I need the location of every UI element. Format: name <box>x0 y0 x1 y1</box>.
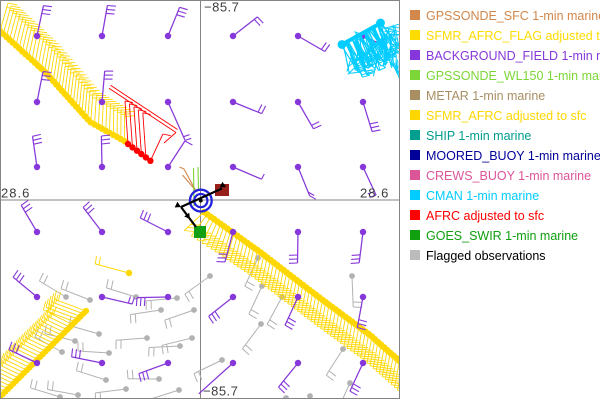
svg-text:−85.7: −85.7 <box>204 0 239 15</box>
svg-text:−85.7: −85.7 <box>203 384 238 399</box>
svg-text:CREWS_BUOY 1-min marine: CREWS_BUOY 1-min marine <box>426 169 591 183</box>
svg-text:SFMR_AFRC_FLAG adjusted to sfc: SFMR_AFRC_FLAG adjusted to sfc <box>426 29 600 43</box>
svg-text:Flagged observations: Flagged observations <box>426 249 546 263</box>
svg-text:GPSSONDE_SFC 1-min marine: GPSSONDE_SFC 1-min marine <box>426 9 600 23</box>
svg-text:METAR 1-min marine: METAR 1-min marine <box>426 89 545 103</box>
svg-text:CMAN 1-min marine: CMAN 1-min marine <box>426 189 539 203</box>
svg-text:28.6: 28.6 <box>360 186 389 201</box>
svg-text:BACKGROUND_FIELD 1-min marine: BACKGROUND_FIELD 1-min marine <box>426 49 600 63</box>
svg-text:MOORED_BUOY 1-min marine: MOORED_BUOY 1-min marine <box>426 149 600 163</box>
svg-text:SHIP 1-min marine: SHIP 1-min marine <box>426 129 531 143</box>
svg-text:GOES_SWIR 1-min marine: GOES_SWIR 1-min marine <box>426 229 578 243</box>
svg-text:28.6: 28.6 <box>1 186 30 201</box>
svg-text:GPSSONDE_WL150 1-min marine: GPSSONDE_WL150 1-min marine <box>426 69 600 83</box>
svg-text:AFRC adjusted to sfc: AFRC adjusted to sfc <box>426 209 544 223</box>
svg-text:SFMR_AFRC adjusted to sfc: SFMR_AFRC adjusted to sfc <box>426 109 586 123</box>
